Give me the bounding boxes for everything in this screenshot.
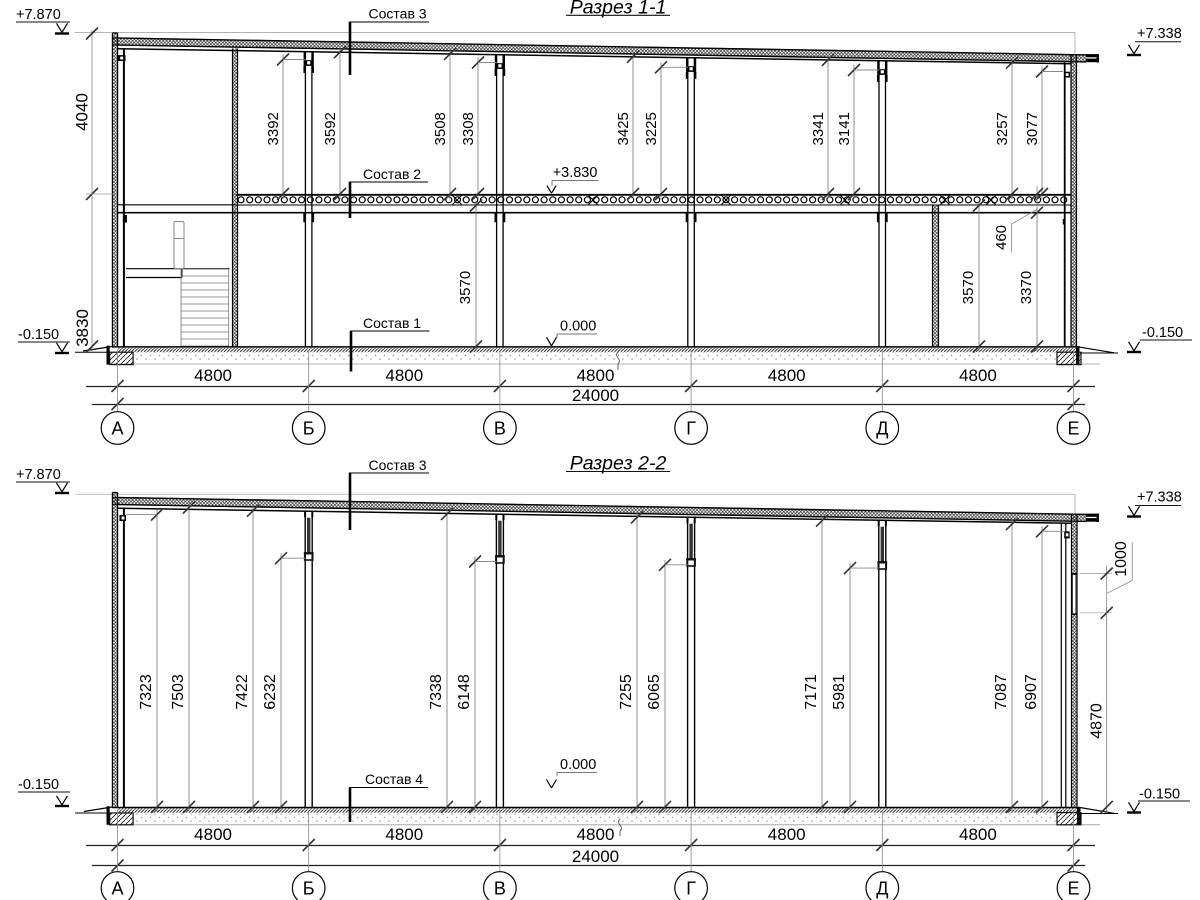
svg-text:Состав 1: Состав 1 (363, 315, 421, 331)
svg-text:-0.150: -0.150 (18, 777, 59, 793)
svg-text:24000: 24000 (572, 847, 619, 866)
svg-text:3077: 3077 (1024, 112, 1041, 145)
svg-text:В: В (494, 419, 506, 439)
svg-text:-0.150: -0.150 (1142, 325, 1183, 341)
svg-text:4870: 4870 (1089, 703, 1106, 739)
svg-text:Д: Д (876, 879, 888, 899)
svg-text:Б: Б (303, 879, 315, 899)
svg-text:7255: 7255 (618, 674, 635, 710)
svg-text:7503: 7503 (170, 674, 187, 710)
svg-text:4800: 4800 (959, 366, 997, 385)
svg-text:4040: 4040 (72, 93, 91, 131)
svg-text:3392: 3392 (265, 112, 282, 145)
svg-text:460: 460 (993, 225, 1010, 250)
svg-text:Г: Г (686, 879, 696, 899)
svg-text:4800: 4800 (194, 366, 232, 385)
svg-text:4800: 4800 (385, 366, 423, 385)
svg-text:3570: 3570 (960, 271, 977, 304)
svg-text:Состав 3: Состав 3 (369, 457, 427, 473)
svg-text:3141: 3141 (836, 112, 853, 145)
svg-text:+7.338: +7.338 (1137, 26, 1182, 42)
svg-text:А: А (111, 879, 123, 899)
svg-text:6065: 6065 (646, 674, 663, 710)
svg-text:+7.870: +7.870 (16, 7, 61, 23)
svg-text:24000: 24000 (572, 386, 619, 405)
svg-text:+7.870: +7.870 (16, 467, 61, 483)
svg-text:4800: 4800 (959, 825, 997, 844)
svg-text:3308: 3308 (460, 112, 477, 145)
svg-text:3830: 3830 (73, 309, 92, 347)
svg-text:1000: 1000 (1113, 541, 1130, 577)
svg-text:+7.338: +7.338 (1137, 490, 1182, 506)
svg-text:0.000: 0.000 (560, 757, 596, 773)
svg-text:6148: 6148 (456, 674, 473, 710)
svg-text:7087: 7087 (993, 674, 1010, 710)
svg-text:3570: 3570 (457, 271, 474, 304)
svg-text:Е: Е (1067, 419, 1079, 439)
svg-text:Состав 3: Состав 3 (369, 6, 427, 22)
svg-text:В: В (494, 879, 506, 899)
svg-text:+3.830: +3.830 (553, 165, 598, 181)
svg-text:4800: 4800 (768, 825, 806, 844)
svg-text:Д: Д (876, 419, 888, 439)
svg-text:Состав 2: Состав 2 (363, 166, 421, 182)
svg-text:3225: 3225 (643, 112, 660, 145)
svg-text:-0.150: -0.150 (1139, 787, 1180, 803)
svg-text:3508: 3508 (432, 112, 449, 145)
svg-text:7171: 7171 (803, 674, 820, 710)
svg-text:3341: 3341 (810, 112, 827, 145)
svg-text:Г: Г (686, 419, 696, 439)
svg-text:6232: 6232 (262, 674, 279, 710)
svg-text:Состав 4: Состав 4 (365, 771, 423, 787)
svg-text:4800: 4800 (577, 825, 615, 844)
svg-text:-0.150: -0.150 (18, 327, 59, 343)
svg-text:4800: 4800 (768, 366, 806, 385)
svg-text:6907: 6907 (1023, 674, 1040, 710)
svg-text:3592: 3592 (322, 112, 339, 145)
svg-text:3425: 3425 (615, 112, 632, 145)
svg-text:0.000: 0.000 (560, 319, 596, 335)
svg-text:5981: 5981 (831, 674, 848, 710)
svg-text:4800: 4800 (385, 825, 423, 844)
svg-text:А: А (111, 419, 123, 439)
svg-text:7422: 7422 (234, 674, 251, 710)
svg-text:7338: 7338 (428, 674, 445, 710)
svg-text:Б: Б (303, 419, 315, 439)
svg-text:7323: 7323 (138, 674, 155, 710)
svg-text:4800: 4800 (194, 825, 232, 844)
svg-text:3257: 3257 (994, 112, 1011, 145)
svg-text:3370: 3370 (1018, 271, 1035, 304)
svg-text:Е: Е (1067, 879, 1079, 899)
svg-text:4800: 4800 (577, 366, 615, 385)
